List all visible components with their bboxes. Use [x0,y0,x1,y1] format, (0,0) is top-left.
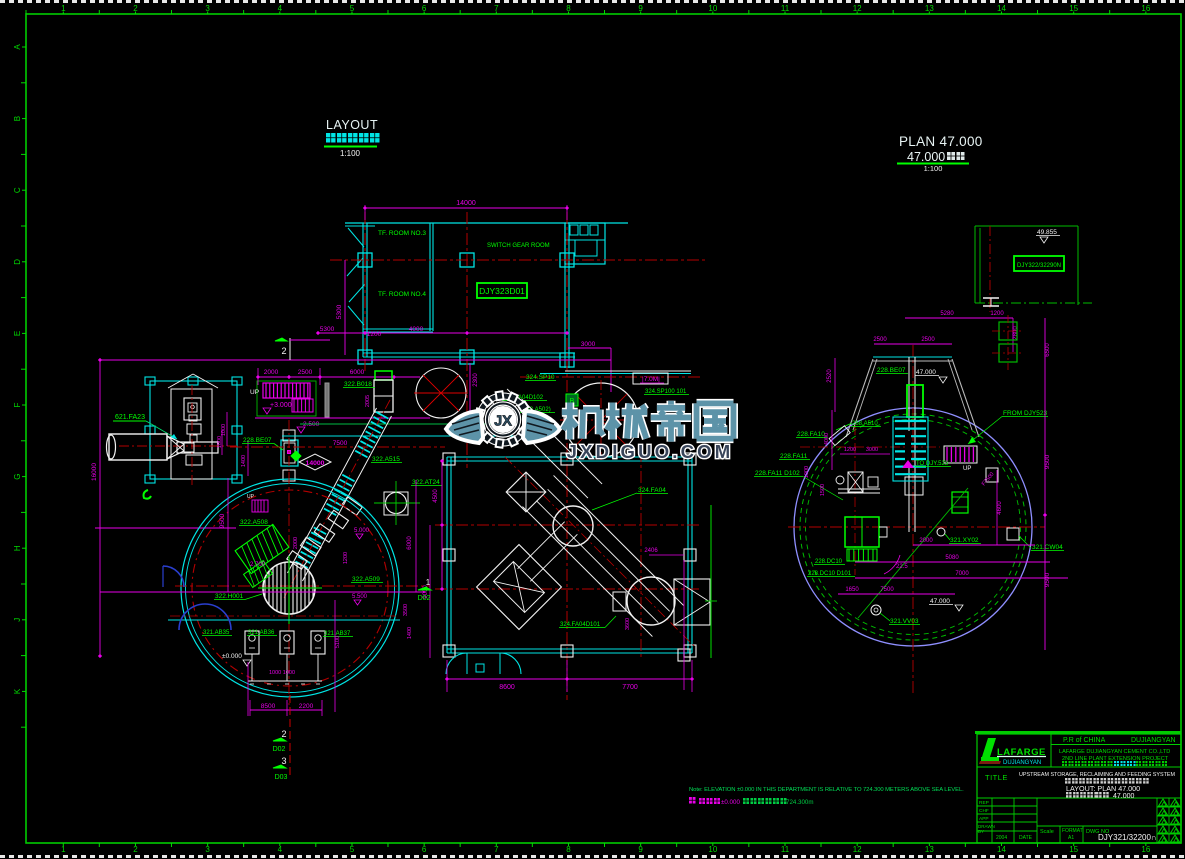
svg-text:7700: 7700 [622,684,638,691]
svg-text:11: 11 [781,845,790,854]
svg-text:Scale: Scale [1040,829,1054,835]
svg-text:D02: D02 [418,595,431,602]
svg-text:1200: 1200 [343,552,349,564]
svg-text:FORMAT: FORMAT [1062,828,1083,834]
svg-text:1400: 1400 [407,627,413,639]
svg-text:1400: 1400 [241,455,247,467]
svg-text:8500: 8500 [261,703,276,710]
svg-text:7500: 7500 [880,587,894,593]
svg-text:D: D [13,259,22,265]
svg-text:REP: REP [979,800,989,806]
svg-text:DJY321/32200∩: DJY321/32200∩ [1098,833,1157,842]
svg-text:5.000: 5.000 [354,528,370,534]
svg-text:UPSTREAM STORAGE, RECLAIMING A: UPSTREAM STORAGE, RECLAIMING AND FEEDING… [1019,772,1175,778]
svg-text:4600: 4600 [997,501,1003,515]
svg-text:1200: 1200 [844,447,856,453]
svg-text:2200: 2200 [299,703,314,710]
svg-text:47.000: 47.000 [1113,793,1135,800]
svg-text:2.700: 2.700 [250,562,266,568]
svg-text:UP: UP [250,389,259,396]
svg-text:FROM DJY523: FROM DJY523 [1003,410,1047,417]
svg-text:12: 12 [853,845,862,854]
svg-text:JX: JX [494,414,512,430]
svg-text:Note: ELEVATION ±0.000 IN THI: Note: ELEVATION ±0.000 IN THIS DEPARTMEN… [689,787,964,793]
svg-text:APP: APP [979,816,989,822]
svg-text:LAYOUT: PLAN 47.000: LAYOUT: PLAN 47.000 [1066,784,1140,793]
svg-text:14: 14 [997,845,1006,854]
svg-text:5: 5 [350,845,355,854]
svg-text:TF. ROOM NO.3: TF. ROOM NO.3 [378,230,426,237]
svg-text:2000: 2000 [293,537,299,549]
svg-text:5280: 5280 [940,311,954,317]
svg-text:2500: 2500 [921,337,935,343]
svg-text:228.FA11 D102: 228.FA11 D102 [755,470,800,477]
svg-text:2500: 2500 [873,337,887,343]
svg-text:D03: D03 [275,774,288,781]
svg-text:UP: UP [963,466,971,472]
svg-text:7000: 7000 [955,571,969,577]
svg-text:5100: 5100 [335,636,341,648]
svg-text:9: 9 [638,845,643,854]
svg-text:1200: 1200 [367,331,382,338]
svg-text:9500: 9500 [1044,572,1051,587]
svg-text:2000: 2000 [919,538,933,544]
svg-text:|7.0M|: |7.0M| [642,376,660,383]
svg-text:2520: 2520 [827,369,833,383]
svg-text:228.BE07: 228.BE07 [243,437,272,444]
svg-text:A: A [13,44,22,50]
svg-text:3500: 3500 [403,604,409,616]
svg-text:LAYOUT: LAYOUT [326,118,378,132]
svg-text:5.500: 5.500 [352,594,368,600]
svg-text:3: 3 [281,756,286,766]
svg-text:CHF: CHF [979,808,989,814]
svg-text:1900: 1900 [804,466,810,478]
svg-text:3600: 3600 [625,618,631,630]
svg-text:16000: 16000 [91,463,98,481]
svg-text:14000: 14000 [306,460,325,467]
svg-text:DJY322/32290N: DJY322/32290N [1017,263,1061,269]
svg-text:2500: 2500 [298,369,313,376]
svg-text:1650: 1650 [845,587,859,593]
svg-text:621.FA23: 621.FA23 [115,414,145,421]
svg-text:4000: 4000 [409,326,424,333]
svg-text:14000: 14000 [456,200,476,207]
svg-text:47.000: 47.000 [907,150,945,164]
svg-text:D02: D02 [273,746,286,753]
svg-text:6: 6 [422,845,427,854]
svg-text:2: 2 [281,346,286,356]
svg-text:2300: 2300 [473,373,479,387]
svg-text:DUJIANGYAN: DUJIANGYAN [1003,760,1041,766]
svg-text:8600: 8600 [499,684,515,691]
svg-text:5300: 5300 [336,304,343,319]
svg-text:TF. ROOM NO.4: TF. ROOM NO.4 [378,291,426,298]
svg-text:322.A508: 322.A508 [240,519,268,526]
svg-text:2000: 2000 [264,369,279,376]
svg-text:F: F [13,402,22,407]
svg-text:1000 1000: 1000 1000 [269,670,295,676]
svg-text:3000: 3000 [866,447,878,453]
svg-text:47.000: 47.000 [930,598,950,605]
svg-text:10: 10 [708,845,717,854]
svg-text:1:100: 1:100 [340,149,361,158]
svg-text:3000: 3000 [581,341,596,348]
svg-text:268.A510: 268.A510 [852,421,878,427]
svg-text:+3.000: +3.000 [270,402,292,409]
svg-text:A1: A1 [1068,835,1074,841]
svg-text:8: 8 [566,845,571,854]
svg-text:DUJIANGYAN: DUJIANGYAN [1131,737,1176,744]
svg-text:322.B018: 322.B018 [344,381,372,388]
svg-text:228.DC10: 228.DC10 [815,559,843,565]
svg-text:K: K [13,688,22,694]
svg-text:321.VV03: 321.VV03 [890,618,919,625]
svg-text:321.AB35: 321.AB35 [203,630,230,636]
svg-text:TO DJY.523: TO DJY.523 [916,461,949,467]
svg-text:SWITCH GEAR ROOM: SWITCH GEAR ROOM [487,243,550,249]
svg-text:1:100: 1:100 [924,164,943,173]
svg-text:228.FA10: 228.FA10 [797,431,825,438]
svg-text:±0.000: ±0.000 [222,653,242,660]
svg-text:1200: 1200 [990,311,1004,317]
svg-text:1: 1 [61,845,66,854]
svg-text:9500: 9500 [1044,454,1051,469]
svg-text:9500: 9500 [219,513,226,528]
svg-text:E: E [13,331,22,336]
svg-text:322.A515: 322.A515 [372,456,400,463]
svg-text:6000: 6000 [350,369,365,376]
svg-text:228.BE07: 228.BE07 [877,367,906,374]
svg-text:322.H001: 322.H001 [215,593,244,600]
svg-text:PLAN 47.000: PLAN 47.000 [899,134,983,149]
svg-text:LAFARGE DUJIANGYAN CEMENT CO.,: LAFARGE DUJIANGYAN CEMENT CO.,LTD [1059,749,1170,755]
svg-text:5080: 5080 [945,555,959,561]
svg-text:22.5: 22.5 [896,564,908,570]
svg-text:2800: 2800 [1013,326,1019,340]
svg-text:324.FA04D101: 324.FA04D101 [560,622,601,628]
svg-text:UP: UP [247,494,255,500]
svg-text:724.300m: 724.300m [786,799,814,806]
svg-text:15: 15 [1069,845,1078,854]
svg-text:JXDIGUO.COM: JXDIGUO.COM [567,441,734,462]
svg-text:2005: 2005 [365,395,371,407]
svg-text:4500: 4500 [433,489,439,503]
svg-text:324.SP10: 324.SP10 [526,374,555,381]
svg-text:TITLE: TITLE [985,773,1008,782]
svg-text:321.AB36: 321.AB36 [248,630,275,636]
svg-text:228.DC10 D101: 228.DC10 D101 [808,571,852,577]
svg-text:16: 16 [1141,845,1150,854]
svg-text:6000: 6000 [407,536,413,550]
svg-text:6500: 6500 [1045,343,1051,357]
svg-text:J: J [13,618,22,622]
svg-text:1500: 1500 [820,484,826,496]
svg-text:7500: 7500 [333,440,348,447]
svg-text:G: G [13,473,22,479]
svg-text:4000: 4000 [824,433,830,445]
svg-text:49.855: 49.855 [1037,229,1057,236]
svg-text:DJY323D01: DJY323D01 [479,286,525,296]
svg-text:2: 2 [133,845,138,854]
svg-text:BY: BY [978,829,984,834]
svg-text:H: H [13,545,22,551]
svg-text:324.FA04: 324.FA04 [638,487,666,494]
svg-text:C: C [13,187,22,193]
svg-text:3: 3 [205,845,210,854]
svg-text:5300: 5300 [320,326,335,333]
svg-text:B: B [13,116,22,121]
svg-text:DATE: DATE [1019,835,1033,841]
svg-text:47.000: 47.000 [916,369,936,376]
svg-text:2: 2 [281,729,286,739]
svg-text:P.R of CHINA: P.R of CHINA [1063,737,1106,744]
svg-text:228.FA11: 228.FA11 [780,453,808,460]
svg-text:2406: 2406 [644,548,658,554]
svg-text:321.CW04: 321.CW04 [1032,544,1063,551]
svg-text:2004: 2004 [996,835,1007,841]
svg-text:±0.000: ±0.000 [721,799,740,806]
svg-text:13: 13 [925,845,934,854]
svg-text:4: 4 [278,845,283,854]
svg-text:1: 1 [426,578,431,587]
svg-text:7: 7 [494,845,499,854]
svg-text:321.XY02: 321.XY02 [950,537,979,544]
svg-text:322.A509: 322.A509 [352,576,380,583]
